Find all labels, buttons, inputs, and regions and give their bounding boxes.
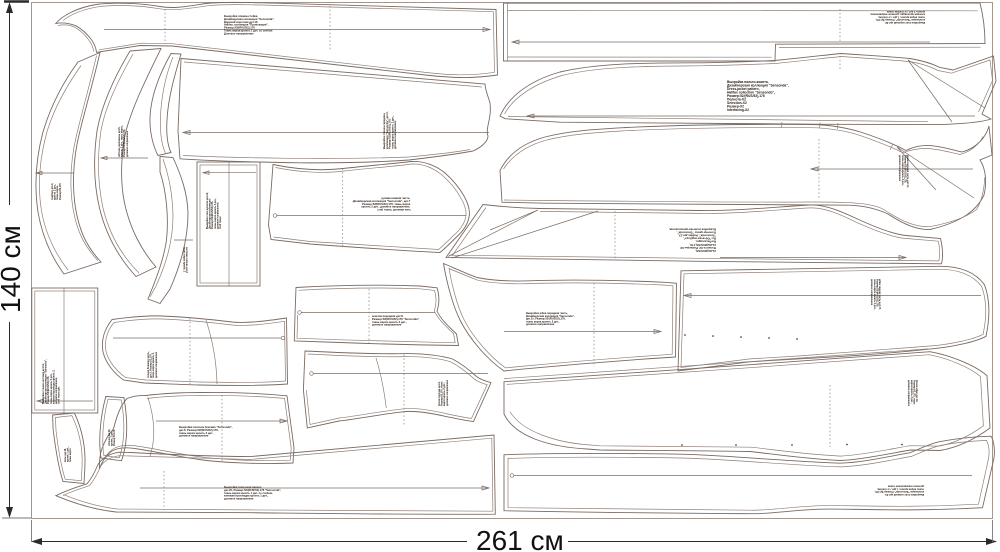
svg-text:бочок юбки дет.19, Размер:52,1: бочок юбки дет.19, Размер:52,176, ткань … [907, 380, 918, 407]
svg-text:261 см: 261 см [476, 525, 564, 552]
svg-text:застежка планка дет.2ткань вер: застежка планка дет.2ткань верха кроить … [182, 247, 188, 274]
svg-text:Выкройка планка-стойка, Дизайн: Выкройка планка-стойка, Дизайнерская кол… [224, 14, 275, 35]
svg-text:140 см: 140 см [0, 225, 26, 313]
svg-text:бочок полочки дет.9, Размер:52: бочок полочки дет.9, Размер:52,176, ткан… [438, 379, 449, 406]
svg-text:спинка боковая часть, дет.3, Р: спинка боковая часть, дет.3, Размер:52,1… [147, 351, 158, 378]
svg-text:подборт дет.4, кроить 2 дет.,: подборт дет.4, кроить 2 дет., ткань верх… [51, 182, 62, 200]
svg-text:обтачка дет.16, кроить 2 дет.,: обтачка дет.16, кроить 2 дет., Размер:52… [108, 428, 116, 446]
